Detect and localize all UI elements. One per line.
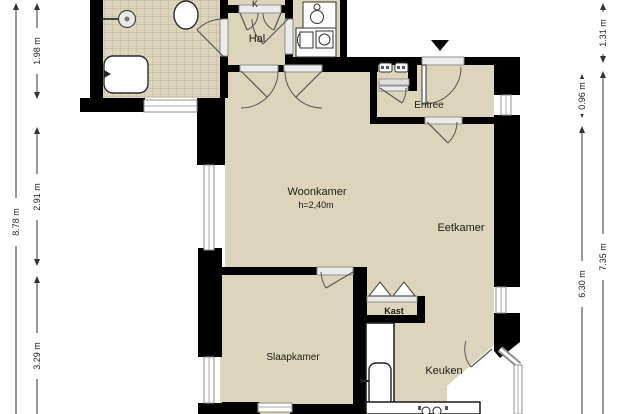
hal-label: Hal: [249, 33, 266, 45]
washing-machine-icon: [298, 32, 314, 48]
balcony-side-window: [514, 365, 522, 414]
meter-icon: [379, 63, 392, 72]
entree-label: Entree: [414, 100, 444, 111]
closet-label-clipped: K: [252, 0, 258, 9]
bathroom-window: [144, 100, 197, 112]
keuken-side-window: [496, 287, 506, 313]
balcony-diagonal-window: [500, 349, 519, 365]
slaapkamer-floor: [220, 275, 355, 414]
dryer-icon: [316, 31, 333, 48]
entree-side-window: [501, 95, 511, 115]
dim-right-outer-1: 1.31 m: [598, 19, 608, 47]
eetkamer-label: Eetkamer: [437, 222, 484, 234]
meter-icon: [395, 63, 408, 72]
woonkamer-height-note: h=2,40m: [298, 200, 333, 210]
dim-right-inner-2: 6.30 m: [577, 270, 587, 298]
entree-floor: [377, 63, 494, 124]
dim-left-2: 2.91 m: [32, 183, 42, 211]
boiler-icon: [303, 2, 336, 28]
floorplan-page: K Hal Entree Woonkamer h=2,40m Eetkamer …: [0, 0, 620, 414]
keuken-label: Keuken: [425, 365, 462, 377]
meterkast-shelf: [379, 79, 409, 85]
bathtub-icon: [104, 56, 148, 93]
woonkamer-label: Woonkamer: [287, 186, 346, 198]
kast-label: Kast: [384, 306, 404, 316]
slaapkamer-bottom-window: [258, 403, 292, 412]
toilet-icon: [174, 1, 198, 29]
dim-left-1: 1.98 m: [32, 37, 42, 65]
dim-left-outer: 8.78 m: [11, 208, 21, 236]
dim-right-outer-2: 7.35 m: [598, 243, 608, 271]
woonkamer-window: [204, 165, 214, 250]
slaapkamer-label: Slaapkamer: [266, 352, 320, 363]
dim-right-inner-1: 0.96 m: [577, 82, 587, 110]
dim-left-3: 3.29 m: [32, 342, 42, 370]
floorplan-drawing: K Hal Entree Woonkamer h=2,40m Eetkamer …: [0, 0, 620, 414]
entrance-marker-icon: [431, 40, 449, 51]
slaapkamer-side-window: [204, 357, 214, 403]
laundry-appliances: [296, 28, 336, 57]
